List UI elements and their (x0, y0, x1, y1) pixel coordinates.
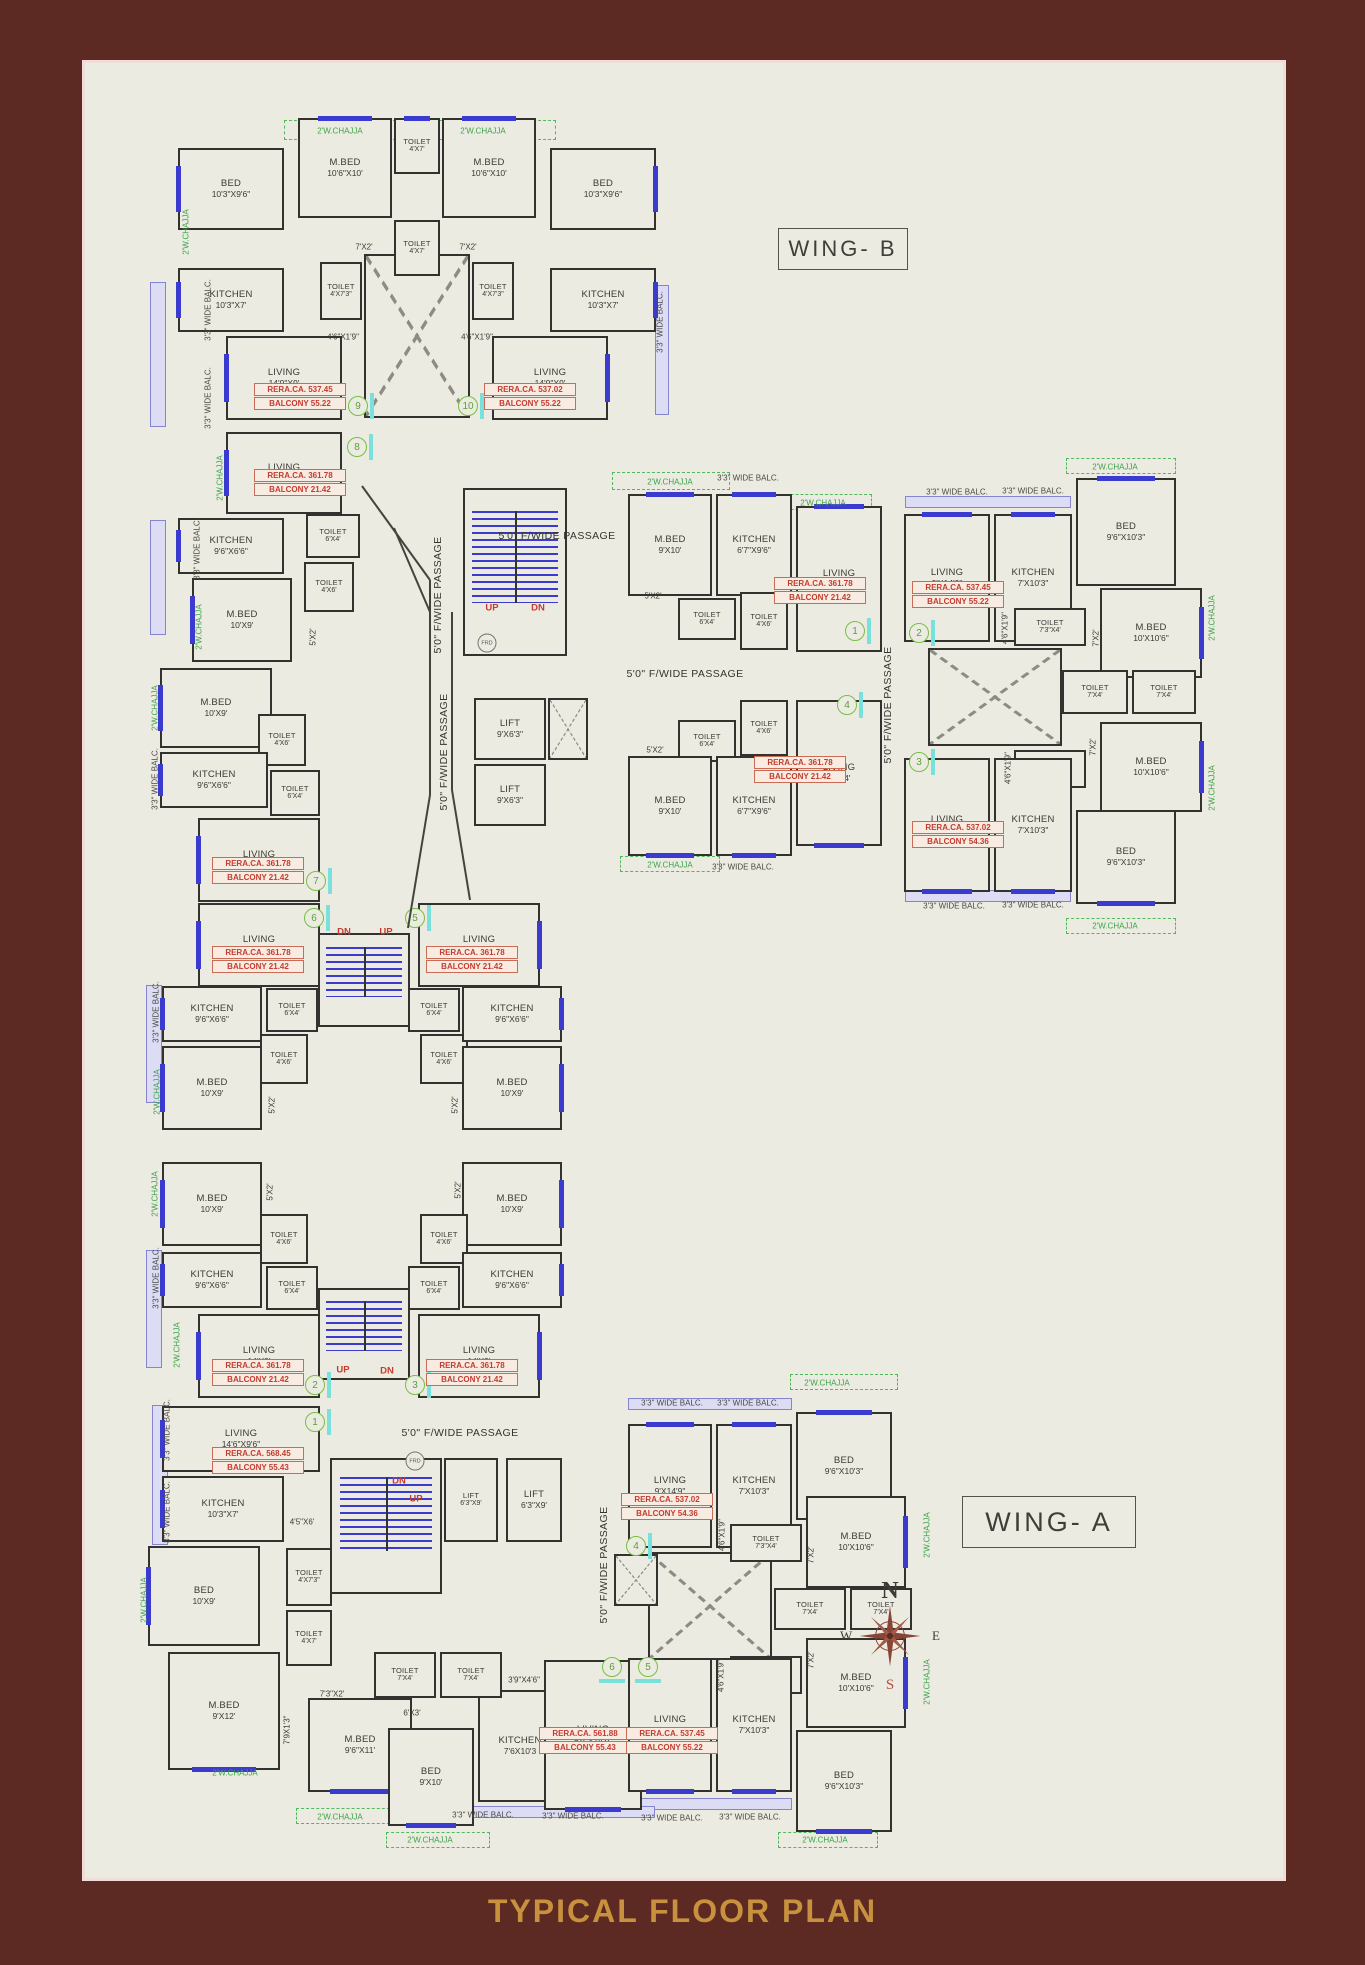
stair-direction-label: DN (531, 603, 545, 614)
room-m-bed: M.BED9'X10' (628, 756, 712, 856)
chajja-label: 2'W.CHAJJA (153, 1069, 162, 1115)
room-dimensions: 9'6"X6'6" (495, 1015, 529, 1025)
room-dimensions: 4'X6' (321, 587, 336, 595)
room-name: LIVING (654, 1715, 686, 1726)
chajja-label: 2'W.CHAJJA (800, 499, 846, 508)
window-marker (160, 1180, 165, 1228)
balcony-label: 3'3" WIDE BALC. (163, 1399, 172, 1461)
room-dimensions: 7'X10'3" (1018, 826, 1049, 836)
room-name: TOILET (403, 240, 430, 249)
chajja-label: 2'W.CHAJJA (1092, 922, 1138, 931)
compass-north-label: N (881, 1578, 898, 1605)
room-name: LIVING (225, 1429, 257, 1440)
window-marker (605, 354, 610, 402)
room-bed: BED10'3"X9'6" (178, 148, 284, 230)
room-dimensions: 7'X4' (802, 1609, 817, 1617)
room-name: TOILET (693, 733, 720, 742)
window-marker (176, 282, 181, 318)
room-dimensions: 4'X6' (436, 1239, 451, 1247)
window-marker (816, 1829, 871, 1834)
room-dimensions: 10'X10'6" (1133, 768, 1169, 778)
room-name: TOILET (315, 579, 342, 588)
room-dimensions: 4'X6' (756, 621, 771, 629)
room-name: M.BED (329, 158, 360, 169)
room-toilet: TOILET4'X7'3" (286, 1548, 332, 1606)
room-toilet: TOILET7'3"X4' (1014, 608, 1086, 646)
chajja-label: 2'W.CHAJJA (195, 604, 204, 650)
stair-direction-label: DN (392, 1476, 406, 1487)
rera-area-value: RERA.CA. 537.45 (254, 383, 346, 396)
stair-direction-label: UP (409, 1494, 422, 1505)
unit-number-badge: 2 (305, 1375, 325, 1395)
dimension-label: 7'X2' (807, 1546, 816, 1563)
room-dimensions: 6'3"X9' (521, 1501, 547, 1511)
balcony-area-value: BALCONY 55.43 (539, 1741, 631, 1754)
chajja-label: 2'W.CHAJJA (140, 1577, 149, 1623)
room-name: M.BED (196, 1194, 227, 1205)
room-living: LIVING9'X14'9" (628, 1424, 712, 1548)
room-name: M.BED (654, 535, 685, 546)
window-marker (160, 998, 165, 1029)
room-dimensions: 7'X4' (463, 1675, 478, 1683)
room-dimensions: 4'X6' (756, 728, 771, 736)
entry-marker (427, 905, 431, 931)
room-dimensions: 9'X12' (212, 1712, 235, 1722)
passage-label: 5'0" F/WIDE PASSAGE (432, 537, 444, 654)
entry-marker (326, 905, 330, 931)
room-name: BED (1116, 847, 1136, 858)
rera-area-value: RERA.CA. 361.78 (426, 1359, 518, 1372)
balcony-label: 3'3" WIDE BALC. (719, 1813, 781, 1822)
entry-marker (931, 620, 935, 646)
room-name: KITCHEN (209, 536, 252, 547)
unit-number-badge: 4 (626, 1536, 646, 1556)
room-dimensions: 9'X6'3" (497, 796, 523, 806)
room-dimensions: 9'6"X6'6" (195, 1015, 229, 1025)
room-name: KITCHEN (190, 1004, 233, 1015)
room-toilet: TOILET6'X4' (408, 988, 460, 1032)
room-name: KITCHEN (732, 1476, 775, 1487)
room-bed: BED10'X9' (148, 1546, 260, 1646)
room-name: TOILET (750, 613, 777, 622)
room-bed: BED9'6"X10'3" (796, 1730, 892, 1832)
dimension-label: 4'6"X1'9" (1001, 612, 1010, 644)
room-toilet: TOILET4'X7'3" (320, 262, 362, 320)
window-marker (196, 1332, 201, 1380)
dimension-label: 5'X2' (309, 628, 318, 645)
room-toilet: TOILET4'X6' (740, 700, 788, 756)
dimension-label: 7'X2' (1092, 629, 1101, 646)
room-name: BED (834, 1771, 854, 1782)
stair-direction-label: UP (485, 603, 498, 614)
room-dimensions: 10'3"X9'6" (212, 190, 251, 200)
window-marker (1011, 889, 1055, 894)
compass-east-label: E (932, 1628, 940, 1644)
room-dimensions: 7'X10'3" (739, 1487, 770, 1497)
room-dimensions: 10'3"X9'6" (584, 190, 623, 200)
room-name: TOILET (457, 1667, 484, 1676)
room-name: M.BED (654, 796, 685, 807)
window-marker (732, 1789, 775, 1794)
room-dimensions: 10'X9' (204, 709, 227, 719)
room-dimensions: 10'6"X10' (471, 169, 507, 179)
room-toilet: TOILET6'X4' (266, 988, 318, 1032)
room-name: KITCHEN (201, 1499, 244, 1510)
unit-number-badge: 3 (405, 1375, 425, 1395)
window-marker (406, 1823, 455, 1828)
balcony-label: 3'3" WIDE BALC. (152, 1247, 161, 1309)
room-kitchen: KITCHEN7'X10'3" (716, 1658, 792, 1792)
balcony-label: 3'3" WIDE BALC. (204, 279, 213, 341)
room-toilet: TOILET4'X7' (286, 1610, 332, 1666)
room-name: TOILET (420, 1280, 447, 1289)
dimension-label: 7'3"X2' (320, 1690, 345, 1699)
entry-marker (327, 1409, 331, 1435)
rera-carpet-area-label: RERA.CA. 361.78BALCONY 21.42 (212, 857, 304, 885)
window-marker (732, 492, 775, 497)
room-m-bed: M.BED10'X9' (160, 668, 272, 748)
fire-door-marker: FRD (478, 634, 497, 653)
balcony-area-value: BALCONY 55.22 (912, 595, 1004, 608)
room-m-bed: M.BED9'X12' (168, 1652, 280, 1770)
chajja-label: 2'W.CHAJJA (151, 1171, 160, 1217)
balcony-area-value: BALCONY 55.22 (484, 397, 576, 410)
room-dimensions: 6'X4' (699, 619, 714, 627)
room-dimensions: 4'X6' (276, 1059, 291, 1067)
window-marker (903, 1516, 908, 1569)
window-marker (646, 492, 694, 497)
room-m-bed: M.BED10'X10'6" (1100, 588, 1202, 678)
room-toilet: TOILET7'3"X4' (730, 1524, 802, 1562)
room-toilet: TOILET7'X4' (374, 1652, 436, 1698)
room-kitchen: KITCHEN10'3"X7' (162, 1476, 284, 1542)
room-kitchen: KITCHEN9'6"X6'6" (162, 986, 262, 1042)
balcony-label: 3'3" WIDE BALC. (926, 488, 988, 497)
room-dimensions: 9'6"X10'3" (1107, 858, 1146, 868)
room-dimensions: 6'7"X9'6" (737, 546, 771, 556)
chajja-label: 2'W.CHAJJA (1092, 463, 1138, 472)
dimension-label: 5'X2' (266, 1183, 275, 1200)
chajja-label: 2'W.CHAJJA (1208, 765, 1217, 811)
room-m-bed: M.BED10'X10'6" (1100, 722, 1202, 812)
room-name: TOILET (278, 1002, 305, 1011)
room-dimensions: 6'X4' (426, 1010, 441, 1018)
room-name: TOILET (479, 283, 506, 292)
rera-area-value: RERA.CA. 537.45 (912, 581, 1004, 594)
room-name: KITCHEN (209, 290, 252, 301)
room-dimensions: 7'X4' (1156, 692, 1171, 700)
window-marker (196, 836, 201, 884)
room-name: TOILET (1150, 684, 1177, 693)
window-marker (404, 116, 429, 121)
unit-number-badge: 3 (909, 752, 929, 772)
rera-area-value: RERA.CA. 561.88 (539, 1727, 631, 1740)
rera-area-value: RERA.CA. 537.02 (484, 383, 576, 396)
window-marker (537, 1332, 542, 1380)
rera-area-value: RERA.CA. 361.78 (254, 469, 346, 482)
balcony-label: 3'3" WIDE BALC. (152, 981, 161, 1043)
rera-carpet-area-label: RERA.CA. 361.78BALCONY 21.42 (774, 577, 866, 605)
room-dimensions: 4'X7' (409, 146, 424, 154)
balcony-area-value: BALCONY 21.42 (212, 960, 304, 973)
window-marker (537, 921, 542, 969)
room-name: TOILET (796, 1601, 823, 1610)
balcony-label: 3'3" WIDE BALC. (717, 474, 779, 483)
room-name: M.BED (496, 1078, 527, 1089)
balcony-label: 3'3" WIDE BALC. (542, 1812, 604, 1821)
balcony-area-value: BALCONY 55.22 (254, 397, 346, 410)
room-name: KITCHEN (490, 1270, 533, 1281)
room-dimensions: 9'6"X6'6" (214, 547, 248, 557)
page-title: TYPICAL FLOOR PLAN (0, 1893, 1365, 1930)
window-marker (196, 921, 201, 969)
stair-divider (386, 1477, 388, 1551)
room-name: M.BED (196, 1078, 227, 1089)
room-dimensions: 7'6X10'3 (504, 1747, 537, 1757)
balcony-label: 3'3" WIDE BALC. (1002, 901, 1064, 910)
room-name: TOILET (270, 1231, 297, 1240)
balcony-label: 3'3" WIDE BALC. (151, 748, 160, 810)
compass-rose: N W E S (840, 1578, 940, 1694)
chajja-label: 2'W.CHAJJA (647, 861, 693, 870)
room-name: LIVING (243, 1346, 275, 1357)
room-name: LIVING (654, 1476, 686, 1487)
room-name: KITCHEN (190, 1270, 233, 1281)
room-name: KITCHEN (1011, 568, 1054, 579)
balcony-area-value: BALCONY 54.36 (621, 1507, 713, 1520)
window-marker (922, 512, 971, 517)
rera-carpet-area-label: RERA.CA. 537.45BALCONY 55.22 (626, 1727, 718, 1755)
passage-label: 5'0" F/WIDE PASSAGE (882, 647, 894, 764)
floor-plan-page: BED10'3"X9'6"M.BED10'6"X10'TOILET4'X7'TO… (0, 0, 1365, 1965)
balcony-label: 3'3" WIDE BALC. (1002, 487, 1064, 496)
passage-label: 5'0" F/WIDE PASSAGE (438, 694, 450, 811)
room-kitchen: KITCHEN9'6"X6'6" (462, 1252, 562, 1308)
room-name: TOILET (1081, 684, 1108, 693)
room-living: LIVING14'X9' (198, 903, 320, 987)
room-living: LIVING14'X9' (418, 903, 540, 987)
dimension-label: 4'5"X6' (290, 1518, 315, 1527)
room-toilet: TOILET4'X6' (260, 1214, 308, 1264)
balcony-area-value: BALCONY 21.42 (212, 871, 304, 884)
rera-carpet-area-label: RERA.CA. 361.78BALCONY 21.42 (754, 756, 846, 784)
chajja-label: 2'W.CHAJJA (212, 1769, 258, 1778)
balcony-label: 3'3" WIDE BALC. (641, 1814, 703, 1823)
room-name: KITCHEN (192, 770, 235, 781)
shaft-cross (364, 254, 470, 418)
unit-number-badge: 4 (837, 695, 857, 715)
room-dimensions: 4'X6' (436, 1059, 451, 1067)
room-toilet: TOILET7'X4' (774, 1588, 846, 1630)
window-marker (922, 889, 971, 894)
window-marker (330, 1789, 390, 1794)
window-marker (1199, 607, 1204, 659)
room-toilet: TOILET4'X7' (394, 220, 440, 276)
room-dimensions: 6'X4' (699, 741, 714, 749)
room-name: BED (834, 1456, 854, 1467)
window-marker (1199, 741, 1204, 793)
room-dimensions: 7'X10'3" (739, 1726, 770, 1736)
balcony-label: 3'3" WIDE BALC. (163, 1481, 172, 1543)
room-name: LIVING (534, 368, 566, 379)
rera-carpet-area-label: RERA.CA. 537.02BALCONY 55.22 (484, 383, 576, 411)
room-dimensions: 4'X7' (301, 1638, 316, 1646)
chajja-label: 2'W.CHAJJA (647, 478, 693, 487)
wing-label-wing-a: WING- A (962, 1496, 1136, 1548)
window-marker (1097, 901, 1155, 906)
room-toilet: TOILET4'X7' (394, 118, 440, 174)
dimension-label: 3'9"X4'6" (508, 1676, 540, 1685)
room-name: TOILET (391, 1667, 418, 1676)
window-marker (653, 166, 658, 213)
room-m-bed: M.BED10'X10'6" (806, 1496, 906, 1588)
room-name: KITCHEN (490, 1004, 533, 1015)
unit-number-badge: 9 (348, 396, 368, 416)
stair-direction-label: DN (337, 927, 351, 938)
room-dimensions: 10'6"X10' (327, 169, 363, 179)
room-toilet: TOILET7'X4' (1062, 670, 1128, 714)
rera-area-value: RERA.CA. 537.02 (621, 1493, 713, 1506)
room-toilet: TOILET7'X4' (440, 1652, 502, 1698)
room-name: TOILET (403, 138, 430, 147)
rera-carpet-area-label: RERA.CA. 568.45BALCONY 55.43 (212, 1447, 304, 1475)
room-lift: LIFT6'3"X9' (506, 1458, 562, 1542)
entry-marker (370, 393, 374, 419)
room-bed: BED9'6"X10'3" (1076, 478, 1176, 586)
room-dimensions: 10'X9' (230, 621, 253, 631)
room-toilet: TOILET6'X4' (408, 1266, 460, 1310)
room-name: LIFT (463, 1492, 479, 1501)
shaft-cross (614, 1554, 658, 1606)
room-dimensions: 9'X6'3" (497, 730, 523, 740)
room-dimensions: 9'6"X11' (345, 1746, 375, 1756)
room-toilet: TOILET6'X4' (306, 514, 360, 558)
room-dimensions: 10'X9' (192, 1597, 215, 1607)
room-toilet: TOILET6'X4' (266, 1266, 318, 1310)
dimension-label: 6'X3' (403, 1709, 420, 1718)
room-dimensions: 9'6"X6'6" (195, 1281, 229, 1291)
room-name: LIFT (500, 785, 520, 796)
room-m-bed: M.BED10'X9' (162, 1046, 262, 1130)
passage-label: 5'0" F/WIDE PASSAGE (499, 530, 616, 542)
room-dimensions: 9'6"X6'6" (495, 1281, 529, 1291)
room-name: M.BED (226, 610, 257, 621)
rera-area-value: RERA.CA. 361.78 (774, 577, 866, 590)
chajja-label: 2'W.CHAJJA (923, 1512, 932, 1558)
room-dimensions: 9'6"X10'3" (825, 1467, 864, 1477)
room-m-bed: M.BED10'X9' (462, 1162, 562, 1246)
chajja-label: 2'W.CHAJJA (317, 1813, 363, 1822)
room-dimensions: 4'X7'3" (330, 291, 352, 299)
compass-south-label: S (886, 1677, 894, 1694)
room-kitchen: KITCHEN10'3"X7' (178, 268, 284, 332)
entry-marker (635, 1679, 661, 1683)
unit-number-badge: 5 (405, 908, 425, 928)
rera-carpet-area-label: RERA.CA. 537.02BALCONY 54.36 (912, 821, 1004, 849)
balcony-label: 3'3" WIDE BALC. (923, 902, 985, 911)
rera-area-value: RERA.CA. 361.78 (212, 946, 304, 959)
dimension-label: 5'X2' (268, 1096, 277, 1113)
dimension-label: 7'X2' (807, 1651, 816, 1668)
dimension-label: 4'6"X1'9" (327, 333, 359, 342)
unit-number-badge: 10 (458, 396, 478, 416)
entry-marker (867, 618, 871, 644)
room-name: TOILET (278, 1280, 305, 1289)
room-name: TOILET (430, 1051, 457, 1060)
room-dimensions: 9'6"X10'3" (1107, 533, 1146, 543)
compass-west-label: W (840, 1628, 852, 1644)
room-name: TOILET (319, 528, 346, 537)
room-name: LIVING (463, 935, 495, 946)
unit-number-badge: 5 (638, 1657, 658, 1677)
room-name: TOILET (281, 785, 308, 794)
room-m-bed: M.BED9'X10' (628, 494, 712, 596)
chajja-label: 2'W.CHAJJA (802, 1836, 848, 1845)
entry-marker (859, 692, 863, 718)
dimension-label: 7'X2' (355, 243, 372, 252)
chajja-label: 2'W.CHAJJA (151, 685, 160, 731)
room-name: KITCHEN (581, 290, 624, 301)
unit-number-badge: 6 (602, 1657, 622, 1677)
rera-area-value: RERA.CA. 361.78 (754, 756, 846, 769)
room-dimensions: 4'X6' (274, 740, 289, 748)
room-name: KITCHEN (732, 535, 775, 546)
room-dimensions: 6'X4' (287, 793, 302, 801)
room-bed: BED9'6"X10'3" (1076, 810, 1176, 904)
room-dimensions: 7'X4' (1087, 692, 1102, 700)
chajja-label: 2'W.CHAJJA (317, 127, 363, 136)
room-name: TOILET (752, 1535, 779, 1544)
balcony-label: 3'3" WIDE BALC. (656, 291, 665, 353)
window-marker (816, 1410, 871, 1415)
unit-number-badge: 6 (304, 908, 324, 928)
staircase (318, 1288, 410, 1380)
room-dimensions: 9'X10' (658, 546, 681, 556)
room-name: TOILET (327, 283, 354, 292)
room-name: M.BED (1135, 623, 1166, 634)
room-m-bed: M.BED10'X9' (162, 1162, 262, 1246)
room-name: BED (194, 1586, 214, 1597)
window-marker (732, 1422, 775, 1427)
window-marker (318, 116, 372, 121)
stair-direction-label: UP (379, 927, 392, 938)
chajja-label: 2'W.CHAJJA (173, 1322, 182, 1368)
room-dimensions: 7'3"X4' (1039, 627, 1061, 635)
room-name: TOILET (1036, 619, 1063, 628)
dimension-label: 5'X2' (451, 1096, 460, 1113)
rera-area-value: RERA.CA. 361.78 (426, 946, 518, 959)
dimension-label: 7'X2' (459, 243, 476, 252)
stair-divider (515, 511, 517, 603)
room-dimensions: 9'X10' (419, 1778, 442, 1788)
fire-door-marker: FRD (406, 1452, 425, 1471)
entry-marker (327, 1372, 331, 1398)
dimension-label: 4'6"X1'9" (1004, 752, 1013, 784)
rera-carpet-area-label: RERA.CA. 361.78BALCONY 21.42 (212, 946, 304, 974)
balcony-area-value: BALCONY 54.36 (912, 835, 1004, 848)
unit-number-badge: 1 (305, 1412, 325, 1432)
room-toilet: TOILET6'X4' (678, 598, 736, 640)
plan-layer: BED10'3"X9'6"M.BED10'6"X10'TOILET4'X7'TO… (0, 0, 1365, 1965)
room-dimensions: 9'6"X10'3" (825, 1782, 864, 1792)
window-marker (462, 116, 516, 121)
balcony-label: 3'3" WIDE BALC. (193, 518, 202, 580)
rera-carpet-area-label: RERA.CA. 537.45BALCONY 55.22 (912, 581, 1004, 609)
chajja-label: 2'W.CHAJJA (182, 209, 191, 255)
room-kitchen: KITCHEN10'3"X7' (550, 268, 656, 332)
rera-area-value: RERA.CA. 537.45 (626, 1727, 718, 1740)
wing-label-wing-b: WING- B (778, 228, 908, 270)
